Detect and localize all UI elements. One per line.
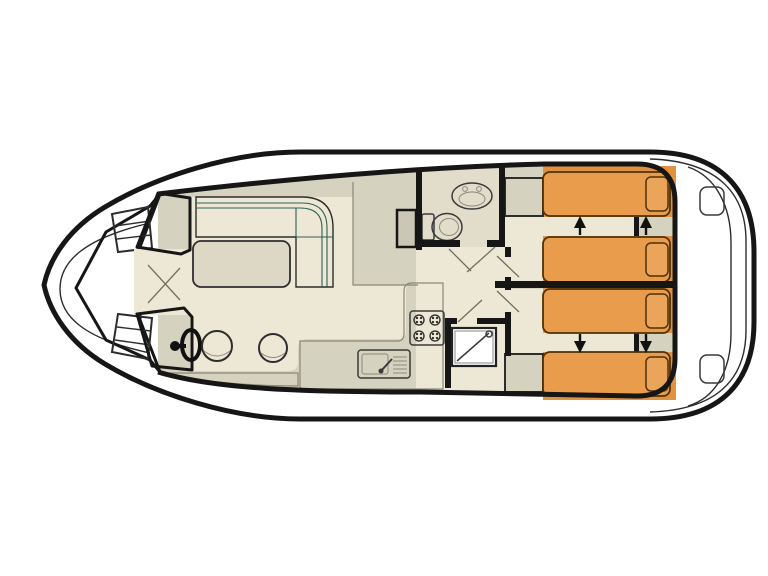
pillow-2 <box>646 243 668 276</box>
saloon-table <box>193 241 290 287</box>
cabin1-bed-gap <box>543 217 634 236</box>
cabin-divider-wall <box>495 281 676 288</box>
pillow-1 <box>646 177 668 211</box>
boat-floor-plan <box>0 0 768 576</box>
shower-tray <box>452 328 496 366</box>
bathroom-cabinet <box>397 210 416 247</box>
cabin2-gap-divider <box>634 333 639 352</box>
pillow-3 <box>646 294 668 328</box>
cabin2-bed-gap <box>543 333 634 352</box>
cabin1-gap-divider <box>634 217 639 236</box>
deck-plan-canvas <box>0 0 768 576</box>
bow-passage-floor <box>134 249 196 315</box>
